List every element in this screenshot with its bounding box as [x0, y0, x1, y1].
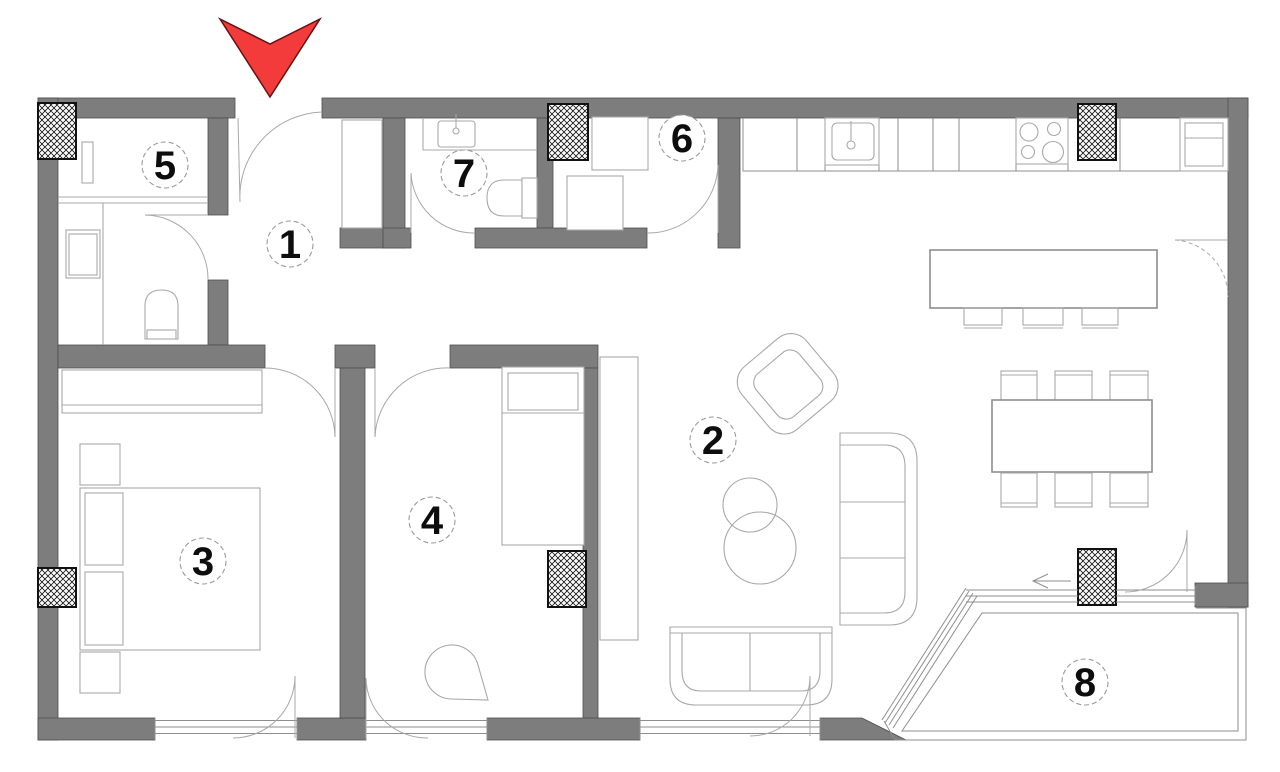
kitchen-island	[930, 250, 1157, 308]
burner	[1048, 123, 1061, 136]
shaft-hatch	[548, 104, 588, 160]
right-wall	[1228, 98, 1248, 607]
room-label-2: 2	[690, 417, 736, 463]
room-label-3: 3	[180, 538, 226, 584]
armchair	[729, 325, 846, 442]
toilet	[145, 290, 178, 339]
dining-chairs-bottom	[1001, 473, 1148, 507]
svg-text:6: 6	[671, 117, 693, 161]
wardrobe	[62, 370, 262, 413]
double-bed	[80, 488, 260, 650]
dining-table	[992, 400, 1152, 472]
room-label-4: 4	[409, 497, 455, 543]
hall-south-wall-3	[450, 345, 598, 368]
slide-arrow-icon	[1033, 574, 1071, 588]
sofa-right-cushions	[840, 445, 905, 613]
svg-text:3: 3	[192, 540, 214, 584]
room-label-6: 6	[659, 115, 705, 161]
kitchen-counter-edge	[743, 118, 1228, 171]
entrance-arrow-icon	[220, 19, 320, 97]
kitchen-faucet-head	[847, 141, 855, 149]
nightstand	[80, 444, 120, 485]
room-label-7: 7	[441, 150, 487, 196]
shaft-hatch	[38, 103, 76, 159]
bottom-wall-1	[38, 718, 155, 740]
dining	[992, 371, 1152, 507]
room3-balcony-door	[233, 676, 295, 738]
room6-right-wall	[718, 118, 740, 248]
hall-closet	[342, 120, 382, 228]
coffee-table-large	[724, 512, 796, 584]
bath7-toilet-bowl	[487, 180, 522, 216]
room3-door	[265, 368, 335, 437]
appliance-2	[567, 176, 623, 230]
bottom-wall-3	[487, 718, 640, 740]
terrace-wall-corner	[1195, 583, 1248, 607]
hall-south-wall-1	[58, 345, 265, 368]
floor-plan: 1 2 3 4 5 6 7 8	[0, 0, 1280, 772]
shaft-hatch	[38, 568, 76, 607]
svg-text:1: 1	[279, 223, 301, 267]
floor-plan-canvas: 1 2 3 4 5 6 7 8	[0, 0, 1280, 772]
burner	[1043, 142, 1064, 163]
entrance-door	[238, 112, 322, 202]
coffee-table-small	[723, 478, 777, 532]
single-bed	[502, 367, 584, 545]
burner	[1020, 123, 1038, 141]
hall-south-wall-2	[335, 345, 375, 368]
shaft-hatch	[548, 551, 586, 607]
room5-door	[145, 215, 208, 280]
bath-south-wall-0	[340, 228, 383, 248]
living-sideboard	[600, 357, 638, 640]
svg-text:2: 2	[702, 419, 724, 463]
room-label-8: 8	[1062, 659, 1108, 705]
terrace-diagonal-glazing	[882, 588, 977, 728]
windows	[155, 574, 1195, 740]
burner	[1022, 146, 1035, 159]
appliance-1	[592, 117, 648, 170]
svg-text:7: 7	[453, 152, 475, 196]
living-room	[600, 325, 917, 705]
left-wall	[38, 98, 58, 740]
room5-right-wall-lower	[208, 280, 228, 345]
shaft-hatch	[1078, 104, 1116, 160]
living-sliding-window	[640, 718, 820, 740]
room4-living-wall	[583, 368, 598, 718]
kitchen-dashed-swing	[1175, 240, 1228, 297]
bath-south-wall-2	[475, 228, 647, 248]
room6-door	[647, 165, 718, 233]
room3-room4-divider	[340, 368, 365, 718]
bar-stools	[964, 308, 1118, 328]
room5-right-wall-upper	[208, 118, 228, 215]
bottom-wall-2	[297, 718, 366, 740]
svg-text:4: 4	[421, 499, 444, 543]
nightstand	[80, 652, 120, 693]
svg-text:5: 5	[154, 144, 176, 188]
dining-chairs-top	[1001, 371, 1148, 402]
room4-window	[366, 718, 487, 740]
bath-south-wall-1	[383, 228, 411, 248]
bedroom3	[62, 370, 262, 693]
fridge	[1180, 118, 1228, 171]
room-label-1: 1	[267, 221, 313, 267]
bath7-toilet-tank	[522, 178, 537, 218]
room-label-5: 5	[142, 142, 188, 188]
washing-machine	[66, 230, 100, 278]
room4-door	[375, 368, 450, 437]
sofa-bottom-cushions	[670, 633, 832, 691]
desk-chair	[425, 645, 488, 700]
svg-text:8: 8	[1074, 661, 1096, 705]
room4-balcony-door	[366, 678, 428, 738]
radiator	[82, 142, 93, 183]
hall-fixtures	[342, 120, 382, 228]
shaft-hatch	[1078, 549, 1116, 605]
kitchen	[743, 118, 1228, 328]
terrace-door	[1125, 530, 1187, 592]
